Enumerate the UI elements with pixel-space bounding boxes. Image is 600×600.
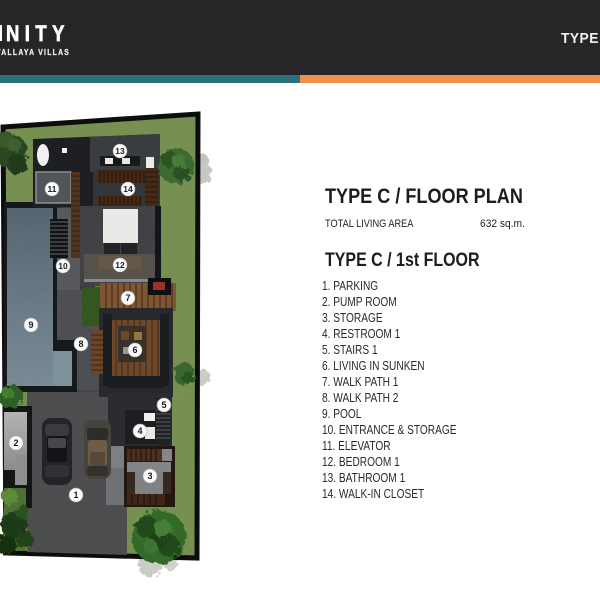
svg-text:2: 2 <box>13 438 18 448</box>
svg-text:13: 13 <box>115 146 125 156</box>
svg-text:5: 5 <box>161 400 166 410</box>
svg-text:3: 3 <box>147 471 152 481</box>
svg-text:1: 1 <box>73 490 78 500</box>
svg-text:9: 9 <box>28 320 33 330</box>
svg-text:7: 7 <box>125 293 130 303</box>
svg-text:14: 14 <box>123 184 133 194</box>
svg-text:8: 8 <box>78 339 83 349</box>
svg-text:10: 10 <box>58 261 68 271</box>
svg-text:12: 12 <box>115 260 125 270</box>
svg-text:4: 4 <box>137 426 142 436</box>
svg-text:6: 6 <box>132 345 137 355</box>
svg-text:11: 11 <box>48 184 57 194</box>
